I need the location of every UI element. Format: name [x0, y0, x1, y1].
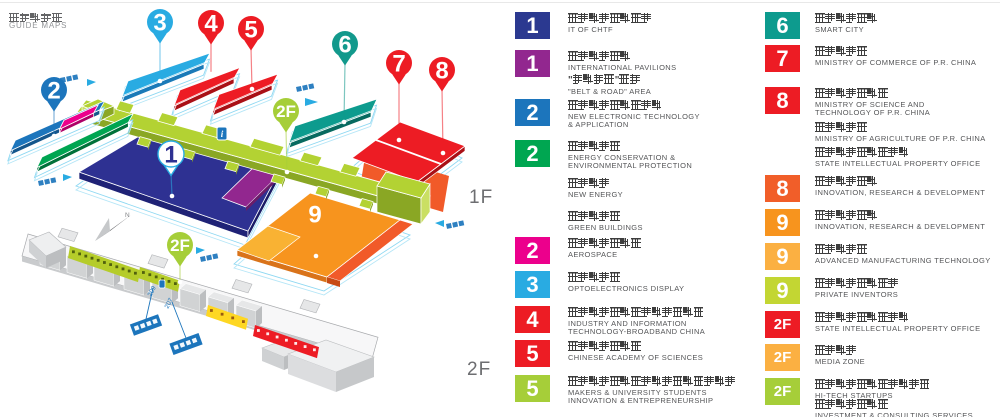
svg-text:5: 5	[244, 17, 257, 44]
svg-text:3: 3	[153, 10, 166, 37]
svg-text:2F: 2F	[276, 102, 296, 121]
svg-text:9: 9	[308, 202, 321, 229]
svg-text:N: N	[125, 212, 130, 219]
svg-text:8: 8	[435, 58, 448, 85]
svg-text:7: 7	[392, 51, 405, 78]
svg-text:6: 6	[338, 32, 351, 59]
svg-text:1: 1	[164, 142, 177, 169]
svg-text:2: 2	[47, 78, 60, 105]
svg-text:4: 4	[204, 11, 218, 38]
svg-text:2F: 2F	[170, 236, 190, 255]
